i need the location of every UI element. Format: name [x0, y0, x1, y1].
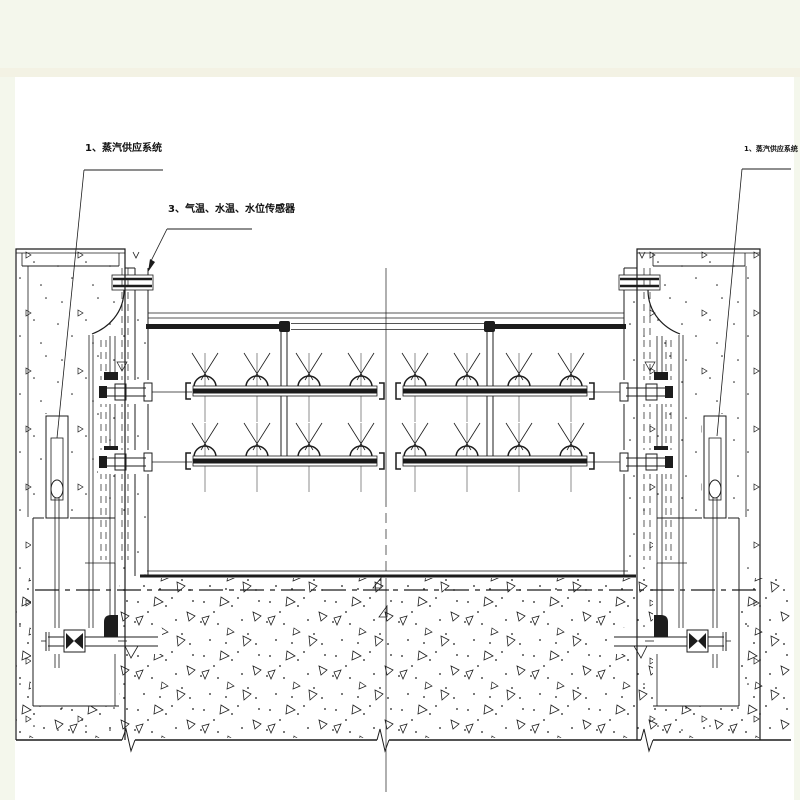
left-steam-label: 1、蒸汽供应系统	[85, 141, 162, 154]
right-wall-texture	[624, 290, 638, 575]
right-steam-label: 1、蒸汽供应系统	[744, 144, 798, 153]
sensor-label: 3、气温、水温、水位传感器	[168, 202, 296, 215]
left-wall-texture	[135, 290, 149, 575]
band-edge	[0, 68, 800, 77]
drawing-stage: 1、蒸汽供应系统 3、气温、水温、水位传感器 1、蒸汽供应系统	[0, 0, 800, 800]
engineering-drawing: 1、蒸汽供应系统 3、气温、水温、水位传感器 1、蒸汽供应系统	[0, 0, 800, 800]
